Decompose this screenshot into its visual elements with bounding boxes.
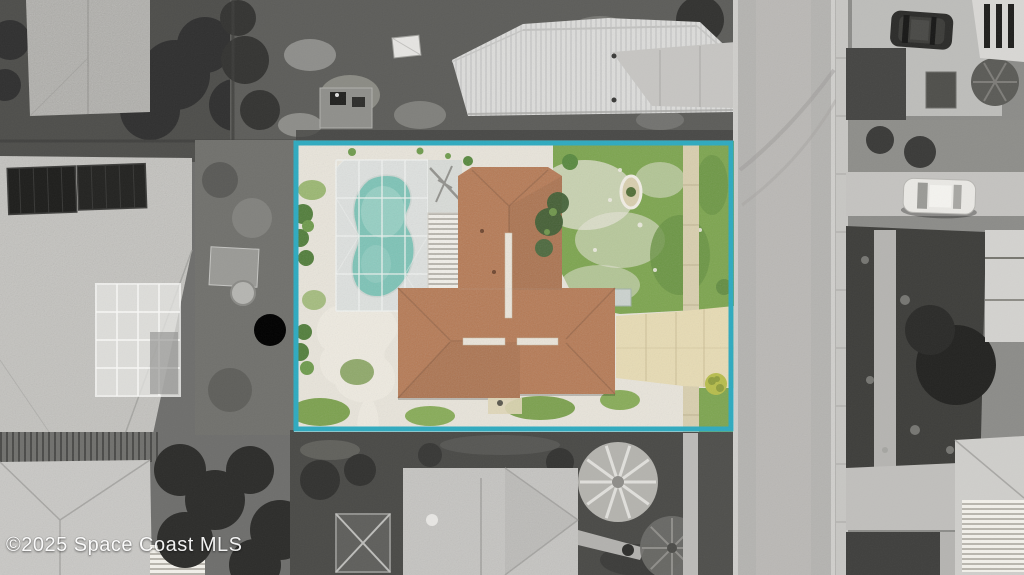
mls-watermark: ©2025 Space Coast MLS <box>6 534 242 557</box>
photo-grain <box>0 0 1024 575</box>
aerial-photo: ©2025 Space Coast MLS <box>0 0 1024 575</box>
aerial-photo-canvas <box>0 0 1024 575</box>
